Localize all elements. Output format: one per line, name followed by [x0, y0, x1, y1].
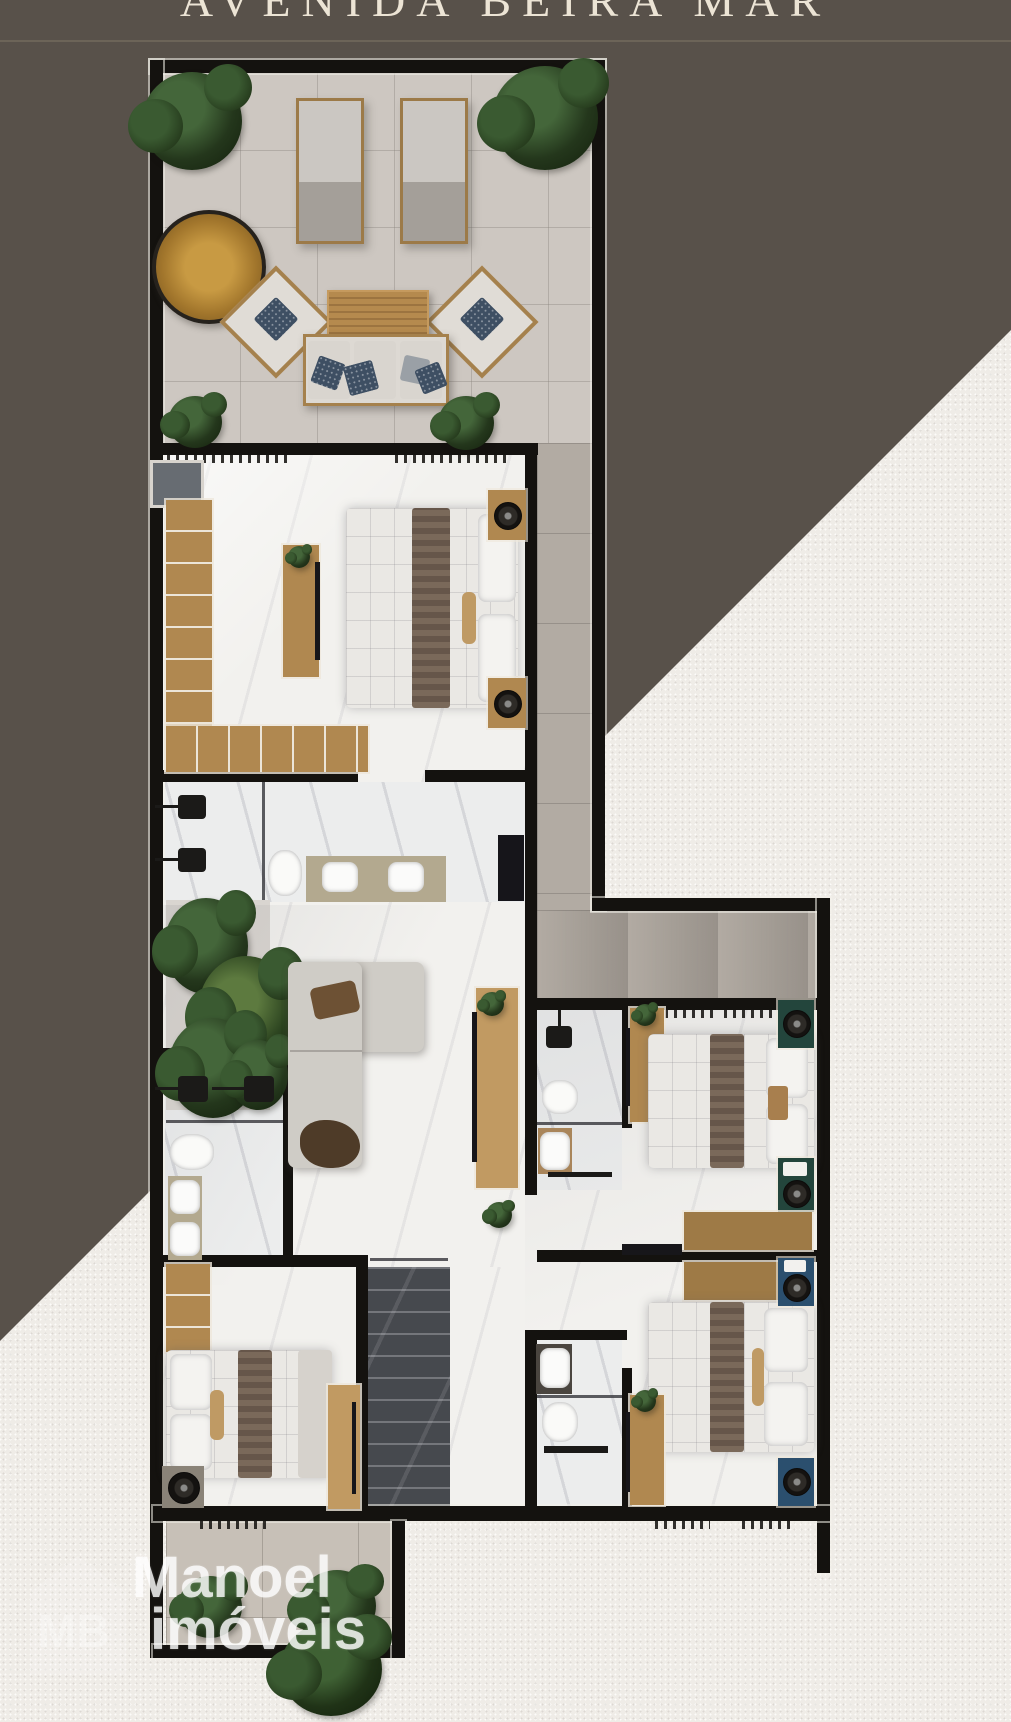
shower-head [178, 1076, 208, 1102]
master-tv [315, 562, 320, 660]
brand-monogram: MB [30, 1556, 126, 1676]
closet-rail-horizontal [684, 1212, 812, 1250]
bedroom3-bed [648, 1302, 814, 1452]
staircase [368, 1267, 450, 1508]
board-plant [480, 992, 504, 1016]
wall-patio-right [392, 1521, 405, 1658]
shower-pipe [155, 1087, 179, 1090]
shower-bar [544, 1446, 608, 1453]
sink [322, 862, 358, 892]
terrace-plant-left [142, 72, 242, 170]
living-tv [472, 1012, 477, 1162]
speaker [494, 502, 522, 530]
sink [170, 1222, 200, 1256]
coffee-table [327, 290, 429, 338]
wall-wing-top [592, 898, 830, 911]
shower-pipe [155, 858, 179, 861]
sliding-door-marks [742, 1521, 792, 1529]
shower-pipe [558, 1010, 561, 1028]
wall-mainbath-top-b [425, 770, 525, 782]
toilet [268, 850, 302, 896]
bed-pillow [764, 1382, 808, 1446]
bedroom2-tv [626, 1028, 630, 1106]
accent-bolster [462, 592, 476, 644]
toilet [542, 1402, 578, 1442]
bed-throw [412, 508, 450, 708]
sink [540, 1348, 570, 1388]
bedroom2-bed [648, 1034, 814, 1168]
speaker [494, 690, 522, 718]
shower-head [178, 848, 206, 872]
nightstand-blue [778, 1458, 814, 1506]
bed-throw [710, 1034, 744, 1168]
monogram-roof [30, 1556, 126, 1592]
shower-head [178, 795, 206, 819]
terrace-shrub [438, 396, 494, 450]
bed-pillow [170, 1414, 212, 1470]
bedroom3-tv [626, 1412, 630, 1492]
nightstand-green [778, 1158, 814, 1212]
sink [540, 1132, 570, 1170]
sliding-door-marks [724, 1010, 782, 1018]
monogram-text: MB [38, 1604, 110, 1658]
bath-cabinet [498, 835, 524, 901]
wall-tv [622, 1244, 682, 1255]
shower-pipe [155, 805, 179, 808]
bedroom4-bed [166, 1350, 332, 1478]
terrace-shrub [168, 396, 222, 448]
sofa-seam [290, 1050, 362, 1052]
closet-rail-horizontal [166, 726, 368, 772]
board-plant [486, 1202, 512, 1228]
title-band-rule [0, 40, 1011, 42]
terrace-sofa [303, 334, 449, 406]
speaker [783, 1468, 811, 1496]
street-title: AVENIDA BEIRA MAR [180, 0, 831, 27]
shower-head [244, 1076, 274, 1102]
bed-pillow [764, 1308, 808, 1372]
shower-pipe [212, 1087, 244, 1090]
toilet [170, 1134, 214, 1170]
bedroom4-tv [352, 1402, 356, 1494]
accent-pillow [459, 297, 504, 342]
towel-stack [784, 1260, 806, 1272]
terrace-plant-right [492, 66, 598, 170]
wall-right-upper [592, 60, 605, 910]
speaker [783, 1180, 811, 1208]
sink [170, 1180, 200, 1214]
floorplan-render: AVENIDA BEIRA MAR [0, 0, 1011, 1722]
sun-lounger [296, 98, 364, 244]
wall-bottom-main [153, 1506, 830, 1521]
towel-stack [783, 1162, 807, 1176]
closet-rail-vertical [166, 1264, 210, 1352]
toilet [542, 1080, 578, 1114]
shower-glass [537, 1395, 622, 1398]
side-corridor-floor [537, 443, 592, 910]
sink [388, 862, 424, 892]
wall-master-corridor-upper [525, 443, 537, 1195]
bed-throw [710, 1302, 744, 1452]
stair-landing [450, 1267, 526, 1508]
accent-bolster [210, 1390, 224, 1440]
living-tv-board [476, 988, 518, 1188]
accent-pillow [253, 297, 298, 342]
sideboard-plant [288, 546, 310, 568]
dresser-plant [634, 1390, 656, 1412]
street-title-band: AVENIDA BEIRA MAR [0, 0, 1011, 40]
corridor-floor [537, 910, 817, 998]
speaker [783, 1010, 811, 1038]
speaker [783, 1274, 811, 1302]
sliding-door-marks [655, 1521, 710, 1529]
sliding-door-marks [395, 455, 510, 463]
sliding-door-marks [200, 1521, 270, 1529]
brand-word-2: imóveis [150, 1596, 366, 1663]
nightstand-green [778, 1000, 814, 1048]
bed-bench [298, 1350, 332, 1478]
bed-pillow [170, 1354, 212, 1410]
towel-bar [548, 1172, 612, 1177]
bed-tray [768, 1086, 788, 1120]
stair-glass-door [370, 1258, 448, 1261]
shower-glass [166, 1120, 283, 1123]
sliding-door-marks [656, 1010, 716, 1018]
living-sofa [288, 962, 424, 1168]
shower-glass [537, 1122, 622, 1125]
shower-glass [262, 782, 265, 900]
sun-lounger [400, 98, 468, 244]
shower-head [546, 1026, 572, 1048]
nightstand [488, 490, 526, 540]
wall-ensuite-b-top [525, 1330, 627, 1340]
floor-speaker [168, 1472, 200, 1504]
accent-bolster [752, 1348, 764, 1406]
nightstand [488, 678, 526, 728]
nightstand-blue [778, 1258, 814, 1306]
bed-throw [238, 1350, 272, 1478]
dresser-plant [634, 1004, 656, 1026]
